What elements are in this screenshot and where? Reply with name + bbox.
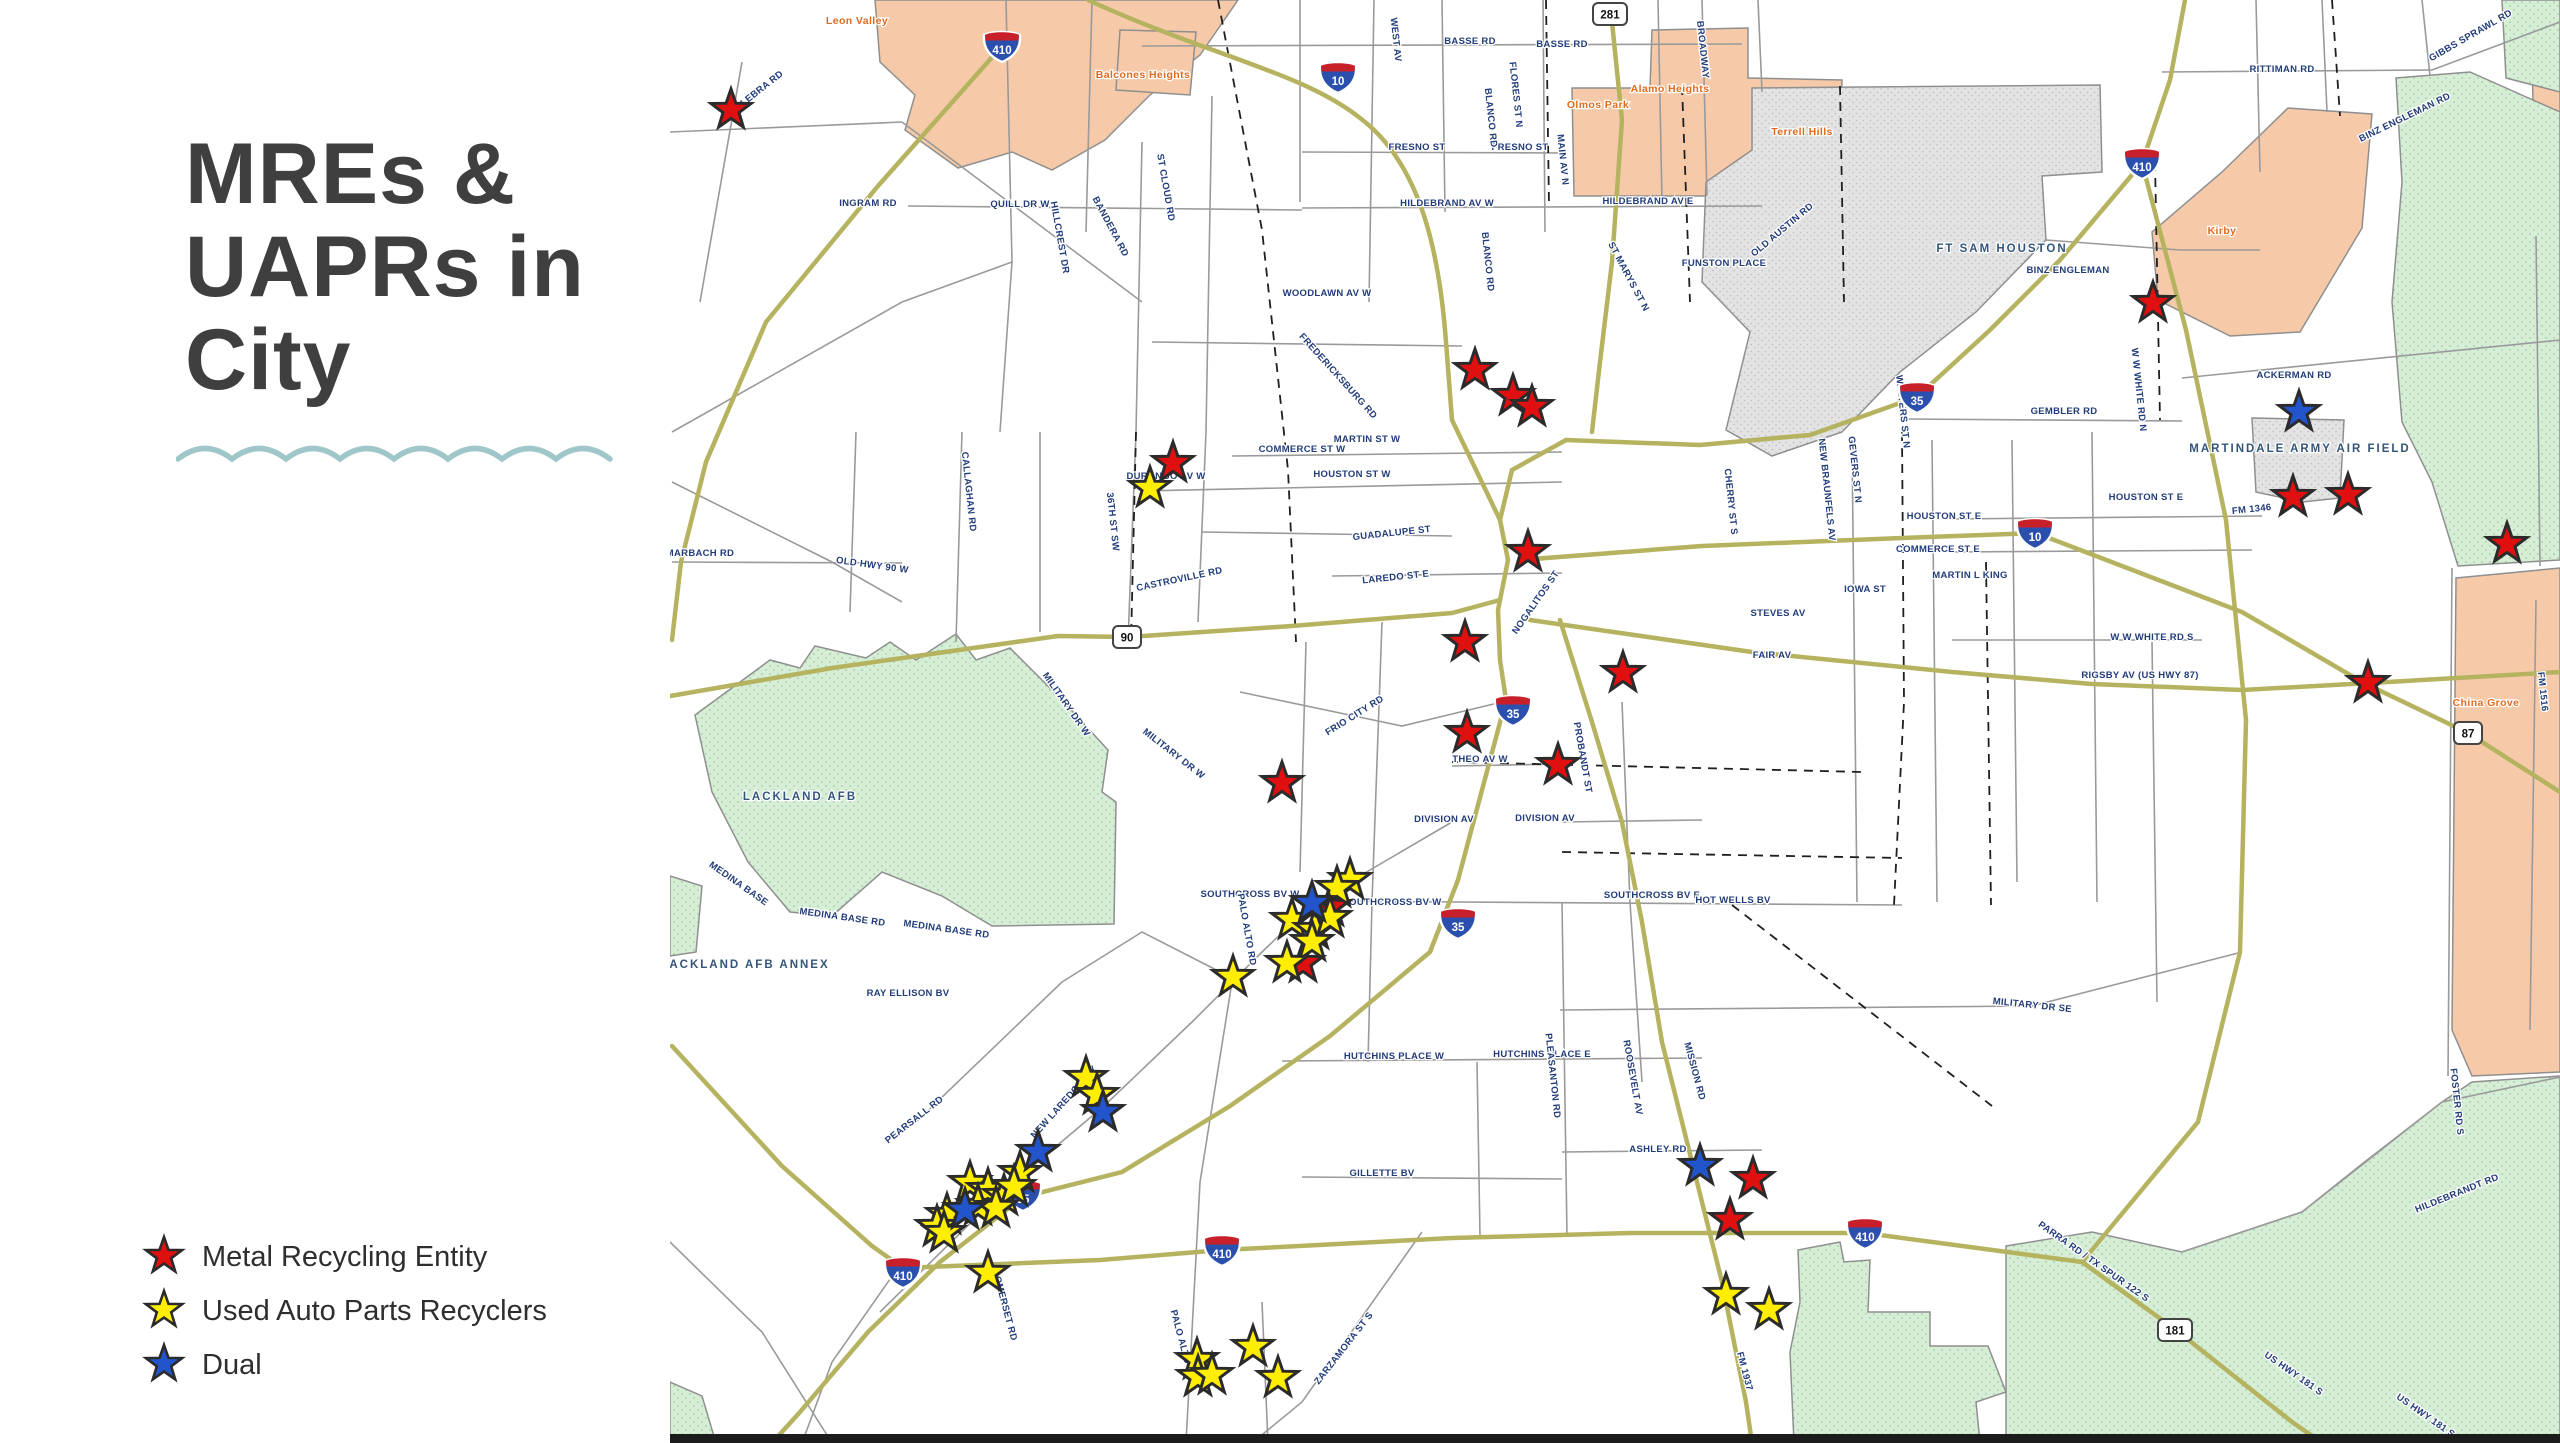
road-label: FAIR AV	[1753, 650, 1792, 661]
road-label: BASSE RD	[1444, 36, 1496, 47]
region-china-grove	[2452, 568, 2560, 1076]
road-label: THEO AV W	[1452, 754, 1507, 765]
svg-text:410: 410	[893, 1271, 912, 1283]
area-label: LACKLAND AFB	[743, 791, 857, 803]
road-label: FRESNO ST	[1388, 142, 1445, 153]
svg-text:35: 35	[1452, 922, 1465, 934]
svg-text:281: 281	[1600, 10, 1620, 22]
region-lackland-annex-sliver	[670, 876, 702, 956]
city-label: China Grove	[2453, 697, 2520, 709]
road-label: COMMERCE ST W	[1259, 444, 1346, 455]
city-label: Kirby	[2208, 225, 2237, 237]
road-label: MARTIN ST W	[1334, 434, 1401, 445]
road-label: FUNSTON PLACE	[1682, 258, 1766, 269]
us-shield-90: 90	[1113, 626, 1141, 648]
title-line-1: MREs &	[185, 128, 585, 221]
title-line-2: UAPRs in	[185, 221, 585, 314]
road-label: DIVISION AV	[1414, 814, 1474, 825]
road-label: MARTIN L KING	[1932, 570, 2008, 581]
road-label: RIGSBY AV (US HWY 87)	[2081, 670, 2198, 681]
svg-text:35: 35	[1507, 709, 1520, 721]
area-label: LACKLAND AFB ANNEX	[670, 959, 830, 971]
page-title: MREs & UAPRs in City	[185, 128, 585, 407]
city-label: Alamo Heights	[1631, 83, 1710, 95]
road-label: GEMBLER RD	[2031, 406, 2098, 417]
svg-text:90: 90	[1121, 633, 1134, 645]
us-shield-87: 87	[2454, 722, 2482, 744]
road-label: SOUTHCROSS BV W	[1343, 897, 1442, 908]
city-label: Leon Valley	[826, 15, 888, 27]
svg-text:410: 410	[1212, 1249, 1231, 1261]
road-label: HUTCHINS PLACE W	[1344, 1051, 1444, 1062]
road-label: MARBACH RD	[670, 548, 734, 559]
road-label: WOODLAWN AV W	[1283, 288, 1372, 299]
road-label: HOUSTON ST W	[1313, 469, 1390, 480]
legend-item-dual: Dual	[142, 1338, 547, 1392]
road-label: QUILL DR W	[990, 199, 1049, 210]
road-label: BASSE RD	[1536, 39, 1588, 50]
map-bottom-border	[670, 1434, 2560, 1443]
svg-text:10: 10	[1332, 76, 1345, 88]
slide: MREs & UAPRs in City Metal Recycling Ent…	[0, 0, 2560, 1443]
title-line-3: City	[185, 314, 585, 407]
road-label: SOUTHCROSS BV W	[1201, 889, 1300, 900]
us-shield-181: 181	[2158, 1319, 2192, 1341]
road-label: HILDEBRAND AV E	[1602, 196, 1693, 207]
city-label: Olmos Park	[1567, 99, 1629, 111]
road-label: SOUTHCROSS BV E	[1604, 890, 1700, 901]
road-label: STEVES AV	[1751, 608, 1806, 619]
road-label: DIVISION AV	[1515, 813, 1575, 824]
road-label: RITTIMAN RD	[2249, 64, 2314, 75]
city-map: CULEBRA RDINGRAM RDQUILL DR WBANDERA RDS…	[670, 0, 2560, 1443]
dual-star-icon	[142, 1340, 186, 1391]
left-panel: MREs & UAPRs in City Metal Recycling Ent…	[0, 0, 670, 1443]
legend-item-label: Metal Recycling Entity	[202, 1241, 487, 1274]
road-label: HILDEBRAND AV W	[1400, 198, 1494, 209]
svg-text:410: 410	[1855, 1232, 1874, 1244]
road-label: INGRAM RD	[839, 198, 897, 209]
area-label: FT SAM HOUSTON	[1936, 243, 2067, 255]
svg-text:410: 410	[992, 45, 1011, 57]
divider-squiggle	[176, 442, 626, 476]
road-label: RAY ELLISON BV	[867, 988, 950, 999]
road-label: COMMERCE ST E	[1896, 544, 1980, 555]
road-label: HUTCHINS PLACE E	[1493, 1049, 1591, 1060]
svg-text:181: 181	[2165, 1326, 2185, 1338]
legend-item-label: Used Auto Parts Recyclers	[202, 1295, 547, 1328]
road-label: GILLETTE BV	[1349, 1168, 1414, 1179]
svg-text:87: 87	[2462, 729, 2475, 741]
road-label: BINZ ENGLEMAN	[2026, 265, 2109, 276]
legend-item-mre: Metal Recycling Entity	[142, 1230, 547, 1284]
road-label: W W WHITE RD S	[2110, 632, 2193, 643]
road-label: FRESNO ST	[1491, 142, 1548, 153]
svg-text:35: 35	[1911, 396, 1924, 408]
city-label: Terrell Hills	[1771, 126, 1833, 138]
legend: Metal Recycling Entity Used Auto Parts R…	[142, 1230, 547, 1392]
legend-item-label: Dual	[202, 1349, 262, 1382]
road-label: ACKERMAN RD	[2256, 370, 2331, 381]
road-label: HOT WELLS BV	[1695, 895, 1771, 906]
road-label: HOUSTON ST E	[2109, 492, 2184, 503]
road-label: ASHLEY RD	[1629, 1144, 1686, 1155]
mre-star-icon	[142, 1232, 186, 1283]
area-label: MARTINDALE ARMY AIR FIELD	[2189, 443, 2410, 455]
svg-text:410: 410	[2132, 162, 2151, 174]
road-label: IOWA ST	[1844, 584, 1886, 595]
map-canvas: CULEBRA RDINGRAM RDQUILL DR WBANDERA RDS…	[670, 0, 2560, 1443]
road-label: HOUSTON ST E	[1907, 511, 1982, 522]
uapr-star-icon	[142, 1286, 186, 1337]
legend-item-uapr: Used Auto Parts Recyclers	[142, 1284, 547, 1338]
us-shield-281: 281	[1593, 3, 1627, 25]
city-label: Balcones Heights	[1096, 69, 1191, 81]
svg-text:10: 10	[2029, 532, 2042, 544]
